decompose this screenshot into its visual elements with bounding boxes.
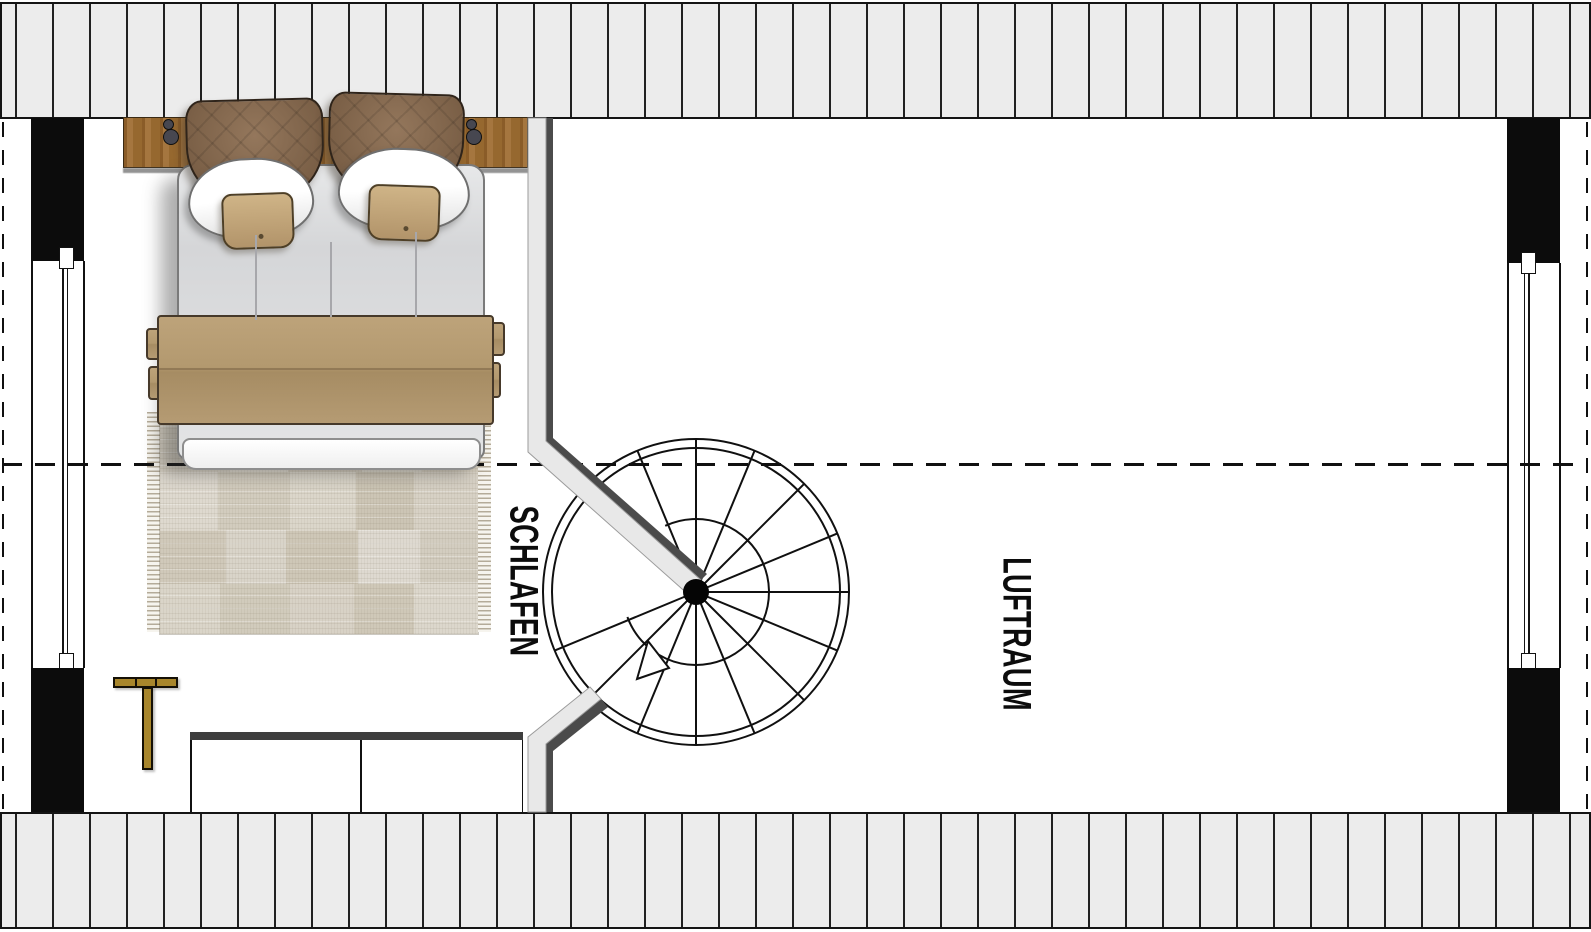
window-left-glass-b: [67, 269, 69, 655]
cushion-tan-right: [367, 184, 441, 242]
stair-direction-arrow-icon: [637, 641, 669, 679]
cushion-tan-left: [221, 192, 295, 250]
duvet-crease: [330, 242, 332, 317]
stair-wall-lower-shadow: [546, 699, 608, 812]
railing-top-rail: [190, 732, 523, 740]
reading-lamp-icon: [163, 129, 179, 145]
duvet-crease: [255, 235, 257, 320]
railing-panel-divider: [360, 740, 362, 812]
rug-patch: [354, 584, 414, 634]
wall-right-lower: [1507, 668, 1560, 812]
rug-fringe-left: [147, 412, 160, 632]
rug-patch: [218, 472, 290, 530]
window-left-glass-a: [62, 269, 64, 655]
roof-hatch-band-bottom: [0, 812, 1591, 929]
rug-patch: [160, 472, 218, 530]
valet-bar-joint: [135, 679, 137, 686]
rug-patch: [290, 584, 354, 634]
stair-wall-upper-shadow: [546, 118, 707, 580]
bed-sheet-fold: [182, 438, 481, 470]
floor-plan: SCHLAFEN LUFTRAUM: [0, 0, 1591, 932]
rug-patch: [414, 472, 478, 530]
wall-left-lower: [31, 668, 84, 812]
roof-edge-dashed-line-left: [2, 122, 4, 812]
railing-panel: [190, 740, 523, 812]
room-label-luftraum: LUFTRAUM: [994, 557, 1039, 711]
rug-patch: [220, 584, 290, 634]
rug-patch: [160, 584, 220, 634]
rug-patch: [420, 530, 478, 584]
wall-left-upper: [31, 118, 84, 261]
bed-blanket: [157, 315, 494, 425]
rug-patch: [414, 584, 478, 634]
stair-center-pole: [683, 579, 709, 605]
window-right-reveal-outer: [1507, 263, 1509, 668]
stair-treads: [543, 439, 849, 745]
stair-wall-lower: [528, 687, 601, 812]
rug-patch: [286, 530, 358, 584]
valet-bar-joint: [155, 679, 157, 686]
rug-patch: [290, 472, 356, 530]
rug-patch: [358, 530, 420, 584]
window-left-frame-top: [59, 247, 74, 269]
blanket-seam: [159, 368, 492, 370]
cushion-button: [258, 234, 263, 239]
rug-patch: [160, 530, 226, 584]
stair-wall-upper: [528, 118, 701, 596]
reading-lamp-icon: [466, 129, 482, 145]
rug-patch: [226, 530, 286, 584]
roof-edge-dashed-line-right: [1586, 122, 1588, 812]
window-right-reveal-inner: [1559, 263, 1561, 668]
valet-stand-stem: [142, 687, 153, 770]
rug-patch: [356, 472, 414, 530]
wall-right-upper: [1507, 118, 1560, 263]
cushion-button: [403, 226, 408, 231]
window-right-frame-top: [1521, 252, 1536, 274]
room-label-schlafen: SCHLAFEN: [501, 506, 546, 657]
duvet-crease: [415, 232, 417, 317]
